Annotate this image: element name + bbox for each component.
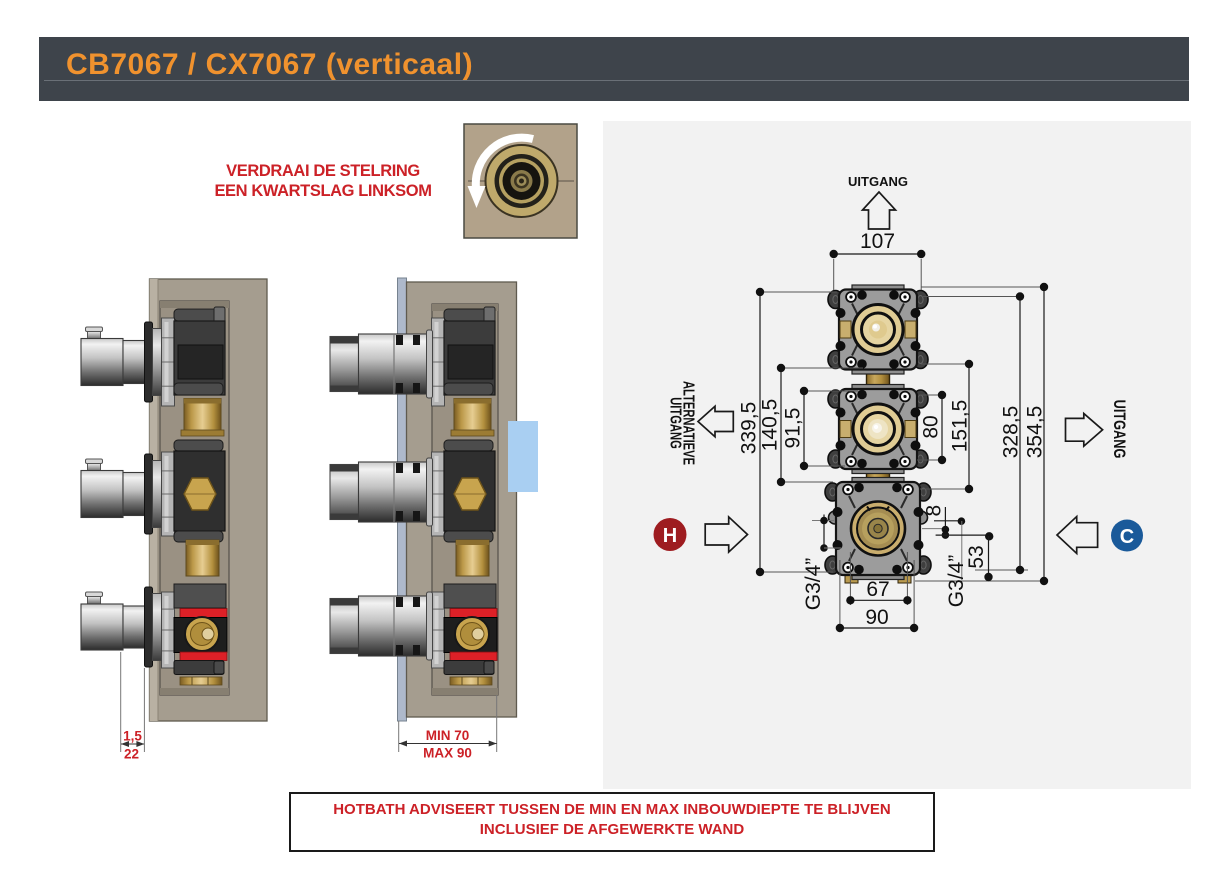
svg-text:UITGANG: UITGANG bbox=[667, 397, 686, 449]
svg-text:53: 53 bbox=[965, 545, 988, 568]
svg-text:C: C bbox=[1120, 526, 1134, 548]
svg-text:UITGANG: UITGANG bbox=[848, 174, 908, 189]
svg-text:G3/4”: G3/4” bbox=[802, 558, 825, 611]
svg-text:354,5: 354,5 bbox=[1024, 406, 1047, 459]
svg-text:G3/4”: G3/4” bbox=[945, 555, 968, 608]
svg-text:1,5: 1,5 bbox=[123, 729, 142, 744]
svg-text:8: 8 bbox=[923, 505, 946, 517]
svg-text:22: 22 bbox=[124, 747, 139, 762]
svg-text:MIN 70: MIN 70 bbox=[426, 728, 470, 743]
svg-text:MAX 90: MAX 90 bbox=[423, 746, 472, 761]
svg-text:140,5: 140,5 bbox=[759, 399, 782, 452]
svg-text:H: H bbox=[663, 525, 677, 547]
svg-text:91,5: 91,5 bbox=[782, 408, 805, 449]
svg-text:UITGANG: UITGANG bbox=[1109, 400, 1128, 459]
svg-text:90: 90 bbox=[865, 606, 888, 629]
svg-text:67: 67 bbox=[866, 578, 889, 601]
svg-text:151,5: 151,5 bbox=[949, 400, 972, 453]
svg-text:80: 80 bbox=[920, 415, 943, 438]
svg-text:107: 107 bbox=[860, 230, 895, 253]
svg-text:339,5: 339,5 bbox=[738, 402, 761, 455]
svg-text:328,5: 328,5 bbox=[1000, 406, 1023, 459]
